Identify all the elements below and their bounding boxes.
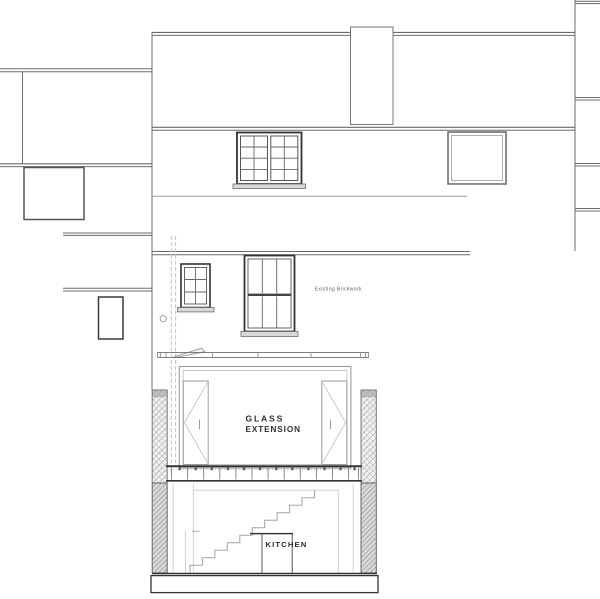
glass-door-right xyxy=(322,381,347,465)
window-frame xyxy=(245,256,295,332)
pipe-clip-circle xyxy=(160,316,166,322)
left-window-lower xyxy=(99,297,124,339)
door-swing-line xyxy=(185,383,208,423)
door-swing-line xyxy=(323,423,346,464)
window-frame xyxy=(448,132,506,184)
door-swing-line xyxy=(323,383,346,423)
basement-wall-left xyxy=(152,483,167,573)
masonry-pier-left xyxy=(152,390,167,483)
upper-plain-window xyxy=(448,132,506,184)
pier-cap-left xyxy=(152,390,167,397)
neighbour-left-elevation xyxy=(0,69,152,339)
kitchen-label: KITCHEN xyxy=(266,540,308,549)
extension-label-line2: EXTENSION xyxy=(246,425,301,434)
elevation-section-drawing: Existing Brickwork xyxy=(0,0,600,599)
window-sill xyxy=(233,184,306,189)
masonry-pier-right xyxy=(361,390,376,483)
basement-wall-right xyxy=(361,483,376,573)
foundation-slab xyxy=(151,576,378,593)
architectural-drawing-canvas: Existing Brickwork xyxy=(0,0,600,599)
window-sill xyxy=(241,332,298,337)
upper-casement-window xyxy=(233,133,306,189)
glass-door-left xyxy=(183,381,208,465)
joist-ticks xyxy=(172,468,359,480)
door-leaf xyxy=(322,381,347,465)
existing-brickwork-label: Existing Brickwork xyxy=(315,287,362,293)
small-sash-window xyxy=(178,264,215,312)
glass-extension-section: GLASS EXTENSION xyxy=(152,348,376,483)
left-window-upper xyxy=(24,168,84,220)
neighbour-right-elevation xyxy=(575,1,600,211)
large-sash-window xyxy=(241,256,298,337)
staircase xyxy=(190,490,315,572)
extension-label-line1: GLASS xyxy=(246,414,285,424)
door-leaf xyxy=(183,381,208,465)
pier-cap-right xyxy=(361,390,376,397)
window-sill xyxy=(178,308,215,312)
chimney xyxy=(351,27,394,125)
kitchen-section: KITCHEN xyxy=(151,483,378,593)
door-swing-line xyxy=(185,423,208,464)
